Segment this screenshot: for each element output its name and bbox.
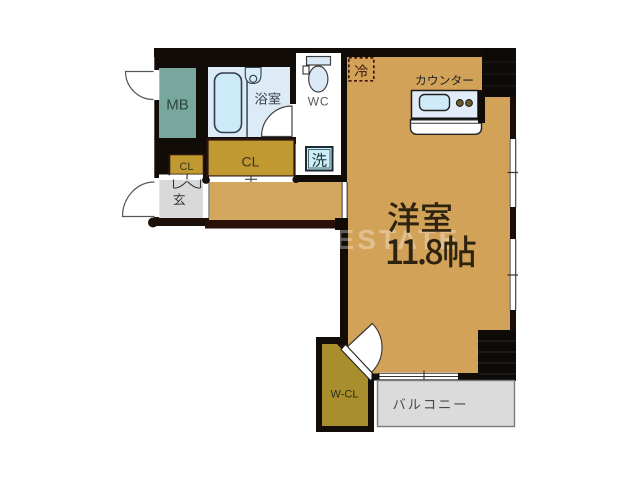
- svg-text:ESTATE: ESTATE: [336, 224, 461, 255]
- svg-text:W-CL: W-CL: [331, 389, 359, 401]
- svg-text:CL: CL: [242, 154, 260, 170]
- svg-text:MB: MB: [166, 97, 189, 114]
- svg-text:WC: WC: [308, 94, 330, 108]
- svg-text:CL: CL: [179, 161, 193, 173]
